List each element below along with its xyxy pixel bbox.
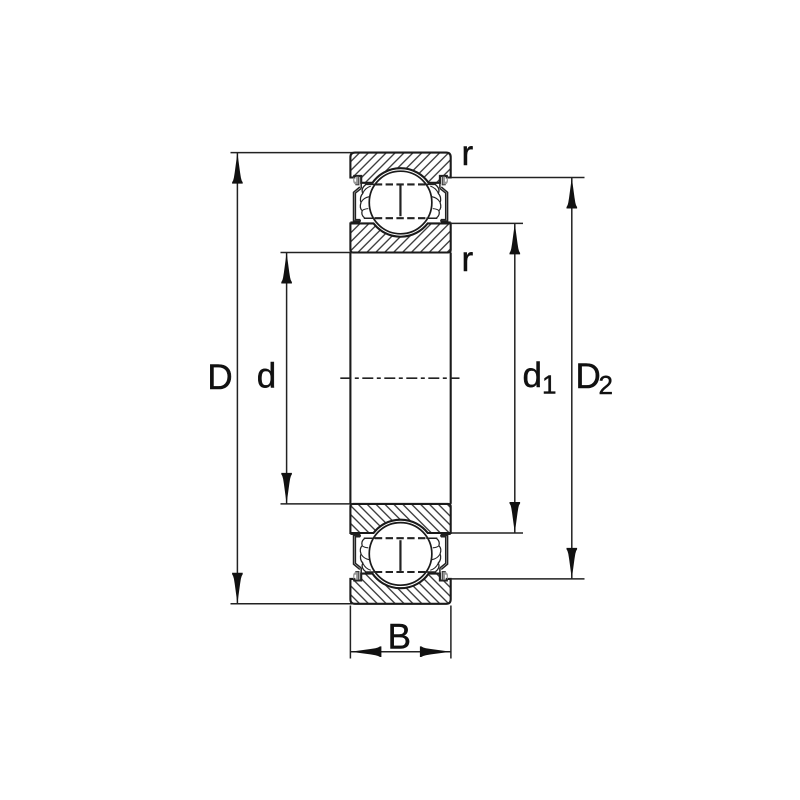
svg-text:d: d [257,357,276,396]
svg-text:r: r [462,134,474,173]
svg-text:B: B [388,617,411,656]
svg-text:D: D [576,357,601,396]
svg-text:r: r [462,240,474,279]
svg-text:D: D [207,358,232,397]
svg-text:1: 1 [542,369,556,399]
svg-text:2: 2 [599,370,613,400]
svg-text:d: d [523,356,542,395]
